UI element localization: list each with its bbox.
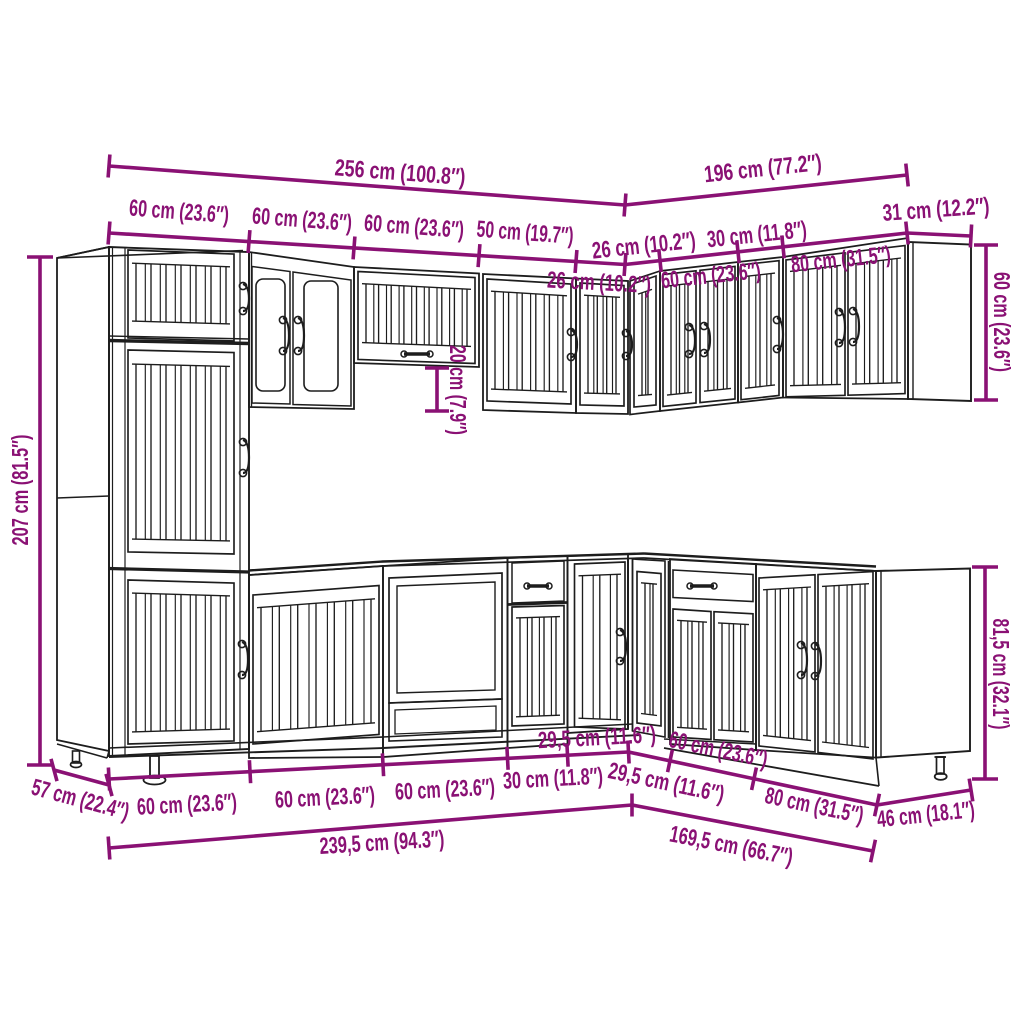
svg-text:60 cm (23.6″): 60 cm (23.6″) bbox=[136, 789, 237, 820]
svg-text:30 cm (11.8″): 30 cm (11.8″) bbox=[502, 763, 603, 794]
svg-text:60 cm (23.6″): 60 cm (23.6″) bbox=[274, 782, 375, 813]
svg-text:60 cm (23.6″): 60 cm (23.6″) bbox=[989, 272, 1015, 372]
svg-text:207 cm (81.5″): 207 cm (81.5″) bbox=[7, 435, 33, 546]
svg-text:20 cm (7.9″): 20 cm (7.9″) bbox=[445, 345, 471, 435]
svg-text:26 cm (10.2″): 26 cm (10.2″) bbox=[546, 267, 651, 298]
svg-text:81,5 cm (32.1″): 81,5 cm (32.1″) bbox=[988, 619, 1014, 730]
svg-text:60 cm (23.6″): 60 cm (23.6″) bbox=[394, 774, 495, 805]
